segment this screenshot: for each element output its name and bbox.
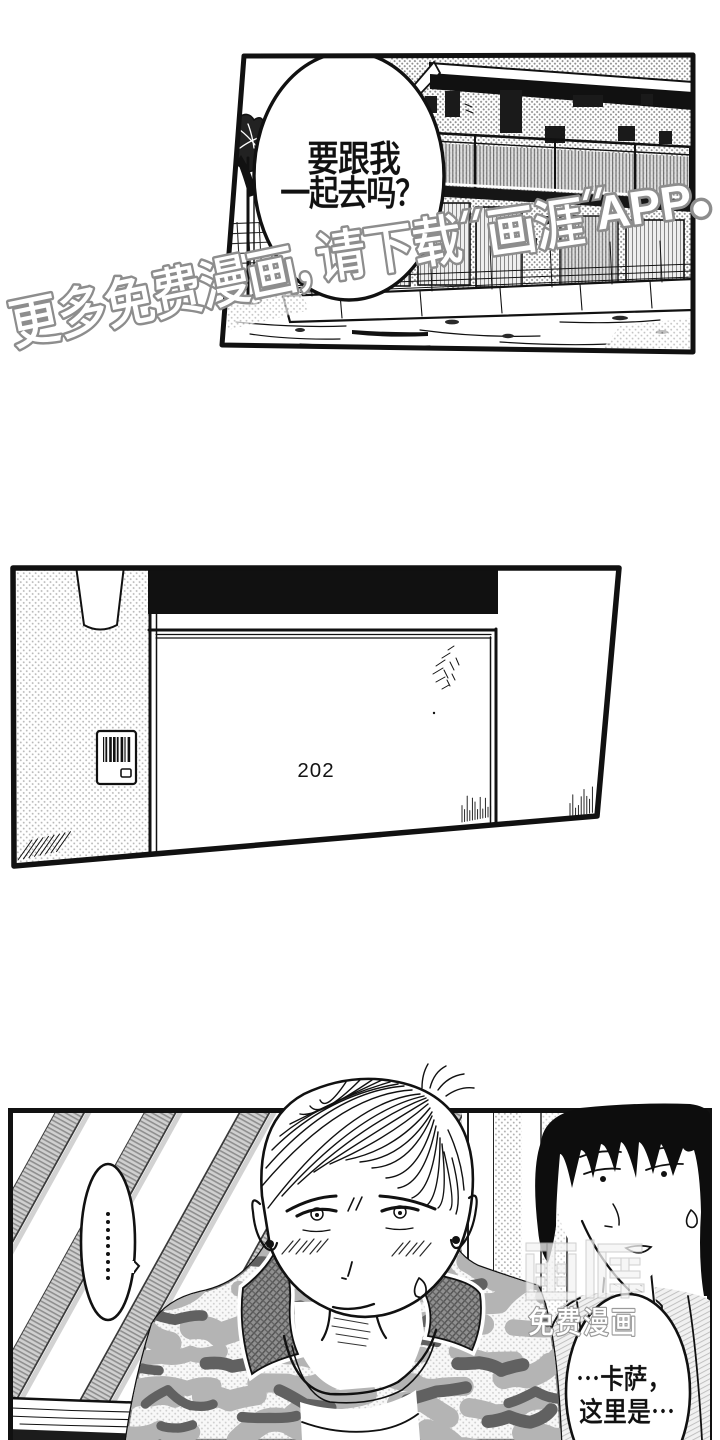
svg-text:202: 202 — [297, 759, 334, 782]
